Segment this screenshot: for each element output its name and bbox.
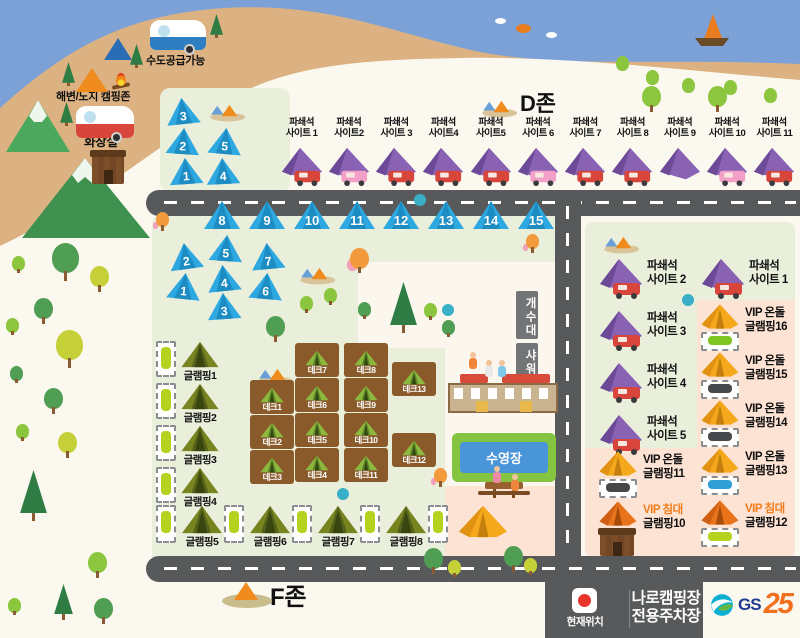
site-label: 파쇄석 사이트 2 [647,260,686,287]
deck-label: 데크8 [357,364,376,376]
tent-number: 13 [439,213,453,228]
tree-icon [642,86,661,112]
tree-icon [8,598,21,615]
deck-column-2: 데크7 데크6 데크5 데크4 [295,343,339,482]
deck-label: 데크2 [263,436,282,448]
crushed-stone-site: 파쇄석 사이트 3 [373,118,420,196]
fish-icon [495,18,506,24]
lamp-dot-icon [442,304,454,316]
deck-label: 데크11 [355,469,378,481]
numbered-tent-icon: 1 [165,270,204,302]
vip-label: VIP 온돌 글램핑14 [745,403,787,447]
tarp-tent-car-icon [563,145,607,187]
parking-spot [156,467,176,503]
vip-label-line1: VIP 침대 [643,504,685,518]
tree-icon [504,546,523,572]
glamping-site: 글램핑7 [292,505,360,549]
gs-text: GS [738,595,761,615]
tarp-tent-car-icon [516,145,560,187]
glamping-label: 글램핑3 [184,452,217,467]
site-label: 파쇄석 사이트2 [334,118,364,145]
tarp-tent-car-icon [469,145,513,187]
glamping-tent-icon [248,505,292,534]
site-label-line2: 사이트5 [476,129,506,140]
tent-number: 1 [182,169,190,183]
windows [454,388,552,399]
zone-c-row-tents: 8 9 10 [203,200,555,234]
vip-glamping-site: VIP 온돌 글램핑13 [700,447,787,495]
site-label: 파쇄석 사이트 3 [647,312,686,339]
deck-column-4: 데크13 데크12 [392,343,436,473]
tree-icon [358,302,371,319]
person-icon [497,360,506,377]
tent-site: 6 [247,270,286,306]
parking-spot [701,528,739,547]
lamp-dot-icon [682,294,694,306]
caravan-icon [150,20,206,50]
deck-site: 데크4 [295,448,339,482]
gs25-logo: GS 25 [708,588,792,621]
roof-icon [502,374,550,383]
car-icon [365,511,375,533]
deck-site: 데크7 [295,343,339,377]
car-icon [606,483,630,492]
deck-site: 데크13 [392,362,436,396]
crushed-stone-site: 파쇄석 사이트4 [420,118,467,196]
numbered-tent-icon: 5 [206,125,244,156]
site-label-line2: 사이트 6 [522,129,554,140]
parking-spot [701,380,739,399]
glamping-toilet-hut-icon [600,528,634,556]
tent-site: 10 [293,200,331,234]
tree-icon [524,558,537,575]
tree-icon [56,330,83,368]
glamping-label: 글램핑7 [322,534,355,549]
car-icon [708,532,732,541]
zone-b-icon [600,232,640,259]
guesthouse-building [448,374,558,414]
zone-f-title: F존 [270,585,306,611]
vip-glamping-site: VIP 온돌 글램핑11 [598,450,684,498]
parking-spot [156,505,176,543]
site-label: 파쇄석 사이트 9 [664,118,696,145]
vip-tent-icon [458,504,508,539]
road-dash [164,567,796,570]
deck-column-1: 데크1 데크2 데크3 [250,380,294,484]
numbered-tent-icon: 9 [248,200,286,230]
tent-number: 9 [263,213,270,228]
bush-icon [682,78,695,93]
vip-label-line2: 글램핑16 [745,321,787,335]
tree-icon [34,298,53,324]
glamping-label: 글램핑2 [184,410,217,425]
tree-icon [424,303,437,320]
numbered-tent-icon: 2 [164,126,202,156]
tree-icon [448,560,461,577]
glamping-tent-icon [384,505,428,534]
deck-label: 데크1 [263,401,282,413]
divider [629,590,630,628]
parking-spot [701,476,739,495]
vip-label-line2: 글램핑14 [745,417,787,431]
site-label: 파쇄석 사이트5 [476,118,506,145]
numbered-tent-icon: 3 [205,291,243,321]
parking-lot: 현재위치 나로캠핑장 전용주차장 [545,580,703,638]
tarp-tent-car-icon [752,145,796,187]
vip-right-column: VIP 온돌 글램핑16 VIP 온돌 글램핑15 [700,303,787,547]
parking-spot [599,479,637,498]
site-label: 파쇄석 사이트 6 [522,118,554,145]
numbered-tent-icon: 7 [249,240,287,271]
car-icon [161,389,171,411]
vip-label-line1: VIP 온돌 [745,403,787,417]
site-label-line2: 사이트 8 [617,129,649,140]
caravan-icon [76,106,134,138]
pool-area: 수영장 [452,433,556,482]
crushed-stone-site: 파쇄석 사이트 3 [598,308,686,360]
tree-icon [442,320,455,337]
campfire-icon [112,70,130,88]
parking-spot [156,383,176,419]
glamping-site: 글램핑1 [156,341,220,383]
parking-line1: 나로캠핑장 [631,590,701,608]
tree-icon [58,432,77,458]
vip-label-line1: VIP 온돌 [643,454,684,468]
zone-b-left-sites: 파쇄석 사이트 2 파쇄석 사이트 3 [598,256,686,464]
zone-a-tents: 3 2 1 [160,88,290,192]
car-icon [297,511,307,533]
site-label: 파쇄석 사이트 4 [647,364,686,391]
current-location-label: 현재위치 [552,616,618,628]
vip-label-line2: 글램핑12 [745,517,787,531]
tree-icon [94,598,113,624]
crushed-stone-site: 파쇄석 사이트 4 [598,360,686,412]
tent-number: 12 [394,213,408,228]
swimming-pool: 수영장 [460,442,548,473]
gs25-symbol-icon [708,591,736,619]
site-label-line2: 사이트 2 [647,274,686,288]
vip-label-line2: 글램핑15 [745,369,787,383]
tent-site: 1 [164,270,203,307]
parking-spot [156,425,176,461]
fish-icon [546,32,557,38]
tree-icon [424,548,443,574]
tent-number: 2 [179,139,187,153]
zone-c-cluster-tents: 2 5 7 [160,230,290,330]
tent-site: 8 [203,200,241,234]
tree-icon [88,552,107,578]
vip-tent-icon [700,447,740,474]
site-label: 파쇄석 사이트 10 [709,118,745,145]
site-label: 파쇄석 사이트 11 [756,118,792,145]
parking-spot [156,341,176,377]
glamping-site: 글램핑2 [156,383,220,425]
vip-tent-icon [700,399,740,426]
tent-number: 14 [484,213,499,228]
deck-site: 데크8 [344,343,388,377]
vip-label-line2: 글램핑11 [643,468,684,482]
numbered-tent-icon: 12 [382,200,420,230]
numbered-tent-icon: 14 [472,200,510,230]
glamping-site: 글램핑8 [360,505,428,549]
zone-d-sites: 파쇄석 사이트 1 파쇄석 사이트2 [278,118,798,196]
glamping-label: 글램핑8 [390,534,423,549]
glamping-tent-icon [180,383,220,410]
site-label-line1: 파쇄석 [647,364,686,378]
vip-label: VIP 온돌 글램핑11 [643,454,684,498]
crushed-stone-site: 파쇄석 사이트2 [325,118,372,196]
parking-spot [701,428,739,447]
vip-label-line2: 글램핑13 [745,465,787,479]
tree-icon [708,86,727,112]
person-icon [510,474,519,491]
glamping-label: 글램핑5 [186,534,219,549]
tree-icon [300,296,313,313]
tarp-tent-car-icon [280,145,324,187]
numbered-tent-icon: 6 [247,270,285,301]
vip-label: VIP 침대 글램핑10 [643,504,685,548]
tarp-tent-car-icon [658,145,702,187]
site-label-line2: 사이트 1 [286,129,318,140]
site-label-line2: 사이트4 [429,129,459,140]
pine-tree-icon [60,102,73,126]
deck-site: 데크12 [392,433,436,467]
vip-label: VIP 침대 글램핑12 [745,503,787,547]
deck-label: 데크13 [402,383,425,395]
car-icon [708,336,732,345]
site-label-line2: 사이트 5 [647,430,686,444]
tent-number: 11 [350,213,364,228]
site-label-line2: 사이트2 [334,129,364,140]
glamping-bottom-row: 글램핑5 글램핑6 글램핑7 [156,505,428,549]
tree-icon [16,424,29,441]
parking-spot [428,505,448,543]
car-icon [229,511,239,533]
deck-site: 데크1 [250,380,294,414]
vip-glamping-site: VIP 침대 글램핑12 [700,499,787,547]
parking-spot [701,332,739,351]
site-label-line2: 사이트 11 [756,129,792,140]
pine-tree-icon [130,44,143,68]
bush-icon [764,88,777,103]
tarp-tent-car-icon [700,256,746,300]
car-icon [161,511,171,533]
site-label: 파쇄석 사이트 7 [569,118,601,145]
tent-number: 15 [529,213,543,228]
road-bottom [146,556,800,582]
deck-label: 데크7 [308,364,327,376]
autumn-tree-icon [156,212,169,231]
car-icon [708,384,732,393]
deck-site: 데크6 [295,378,339,412]
site-label-line1: 파쇄석 [647,260,686,274]
autumn-tree-icon [350,248,369,273]
tent-site: 3 [205,291,243,326]
tarp-tent-car-icon [598,360,644,404]
tent-site: 13 [427,200,465,234]
tarp-tent-car-icon [598,308,644,352]
red-dot-icon [578,594,591,607]
numbered-tent-icon: 3 [163,95,202,127]
numbered-tent-icon: 8 [203,200,241,230]
crushed-stone-site: 파쇄석 사이트 9 [656,118,703,196]
glamping-tent-icon [180,341,220,368]
tent-site: 12 [382,200,420,234]
parking-spot [224,505,244,543]
deck-label: 데크5 [308,434,327,446]
site-label-line1: 파쇄석 [647,312,686,326]
deck-label: 데크4 [308,469,327,481]
pine-tree-icon [210,14,223,38]
caravan-window-icon [158,25,170,37]
pine-tree-icon [390,282,417,333]
crushed-stone-site: 파쇄석 사이트 11 [751,118,798,196]
picnic-table-icon [478,482,530,495]
tent-site: 15 [517,200,555,234]
crushed-stone-site: 파쇄석 사이트 10 [703,118,750,196]
glamping-site: 글램핑4 [156,467,220,509]
car-icon [161,347,171,369]
tarp-tent-car-icon [374,145,418,187]
glamping-left-column: 글램핑1 글램핑2 글램핑3 [156,341,220,509]
tent-number: 3 [220,304,228,318]
glamping-site: 글램핑5 [156,505,224,549]
car-icon [161,431,171,453]
bush-icon [616,56,629,71]
deck-label: 데크3 [263,471,282,483]
vip-tent-icon [700,499,740,526]
vip-label-line1: VIP 온돌 [745,307,787,321]
deck-site: 데크3 [250,450,294,484]
door-icon [476,401,488,412]
deck-site: 데크11 [344,448,388,482]
glamping-tent-icon [180,467,220,494]
vip-tent-icon [598,450,638,477]
zone-d-title: D존 [520,92,556,116]
vip-glamping-site: VIP 온돌 글램핑15 [700,351,787,399]
parking-spot [292,505,312,543]
tarp-tent-car-icon [421,145,465,187]
current-location-marker [572,588,597,613]
site-label-line1: 파쇄석 [647,416,686,430]
site-label-line2: 사이트 10 [709,129,745,140]
site-label-line2: 사이트 3 [380,129,412,140]
numbered-tent-icon: 11 [338,200,376,230]
glamping-tent-icon [180,505,224,534]
tent-site: 14 [472,200,510,234]
tent-number: 8 [218,213,225,228]
parking-title: 나로캠핑장 전용주차장 [631,590,701,626]
tent-site: 4 [204,156,242,191]
tree-icon [12,256,25,273]
tree-icon [10,366,23,383]
person-icon [484,360,493,377]
autumn-tree-icon [526,234,539,253]
site-label-line1: 파쇄석 [749,260,788,274]
bush-icon [646,70,659,85]
tent-site: 1 [167,156,205,191]
door-icon [520,401,532,412]
car-icon [708,480,732,489]
numbered-tent-icon: 15 [517,200,555,230]
road-vertical [555,192,581,582]
crushed-stone-site: 파쇄석 사이트 8 [609,118,656,196]
site-label: 파쇄석 사이트4 [429,118,459,145]
tarp-tent-car-icon [327,145,371,187]
campground-map: 현재위치 나로캠핑장 전용주차장 GS 25 수도공급가능 해변/노지 캠핑존 … [0,0,800,638]
numbered-tent-icon: 5 [207,233,245,263]
vip-label-line1: VIP 침대 [745,503,787,517]
crushed-stone-site: 파쇄석 사이트 7 [562,118,609,196]
crushed-stone-site: 파쇄석 사이트 2 [598,256,686,308]
deck-site: 데크5 [295,413,339,447]
deck-column-3: 데크8 데크9 데크10 데크11 [344,343,388,482]
crushed-stone-site: 파쇄석 사이트 6 [514,118,561,196]
vip-label-line1: VIP 온돌 [745,355,787,369]
tree-icon [6,318,19,335]
crushed-stone-site: 파쇄석 사이트 1 [700,256,788,308]
crushed-stone-site: 파쇄석 사이트 1 [278,118,325,196]
pine-tree-icon [62,62,75,86]
deck-site: 데크2 [250,415,294,449]
crushed-stone-site: 파쇄석 사이트5 [467,118,514,196]
numbered-tent-icon: 1 [167,156,205,186]
parking-line2: 전용주차장 [631,608,701,626]
water-supply-label: 수도공급가능 [146,56,205,68]
car-icon [708,432,732,441]
person-icon [468,352,477,369]
gs25-number: 25 [764,588,792,621]
tent-site: 11 [338,200,376,234]
deck-site: 데크9 [344,378,388,412]
tent-number: 5 [222,246,230,260]
pine-tree-icon [54,584,73,620]
site-label: 파쇄석 사이트 3 [380,118,412,145]
site-label: 파쇄석 사이트 1 [286,118,318,145]
vip-tent-icon [700,351,740,378]
site-label-line2: 사이트 9 [664,129,696,140]
tree-icon [324,288,337,305]
tree-icon [90,266,109,292]
numbered-tent-icon: 4 [204,156,241,186]
site-label: 파쇄석 사이트 5 [647,416,686,443]
tent-site: 9 [248,200,286,234]
glamping-tent-icon [180,425,220,452]
site-label-line2: 사이트 4 [647,378,686,392]
numbered-tent-icon: 13 [427,200,465,230]
tarp-tent-car-icon [598,256,644,300]
site-label: 파쇄석 사이트 8 [617,118,649,145]
tent-number: 10 [304,213,318,228]
vip-glamping-site: VIP 온돌 글램핑16 [700,303,787,351]
sink-sign: 개수대 [516,291,538,339]
vip-tent-icon [700,303,740,330]
vip-label-line2: 글램핑10 [643,518,685,532]
site-label: 파쇄석 사이트 1 [749,260,788,287]
vip-label: VIP 온돌 글램핑13 [745,451,787,495]
glamping-label: 글램핑6 [254,534,287,549]
fish-icon [516,24,531,33]
lamp-dot-icon [337,488,349,500]
tree-icon [52,243,79,281]
deck-label: 데크10 [354,434,377,446]
car-icon [433,511,443,533]
glamping-site: 글램핑6 [224,505,292,549]
glamping-tent-icon [316,505,360,534]
vip-label: VIP 온돌 글램핑15 [745,355,787,399]
glamping-label: 글램핑1 [184,368,217,383]
car-icon [161,473,171,495]
